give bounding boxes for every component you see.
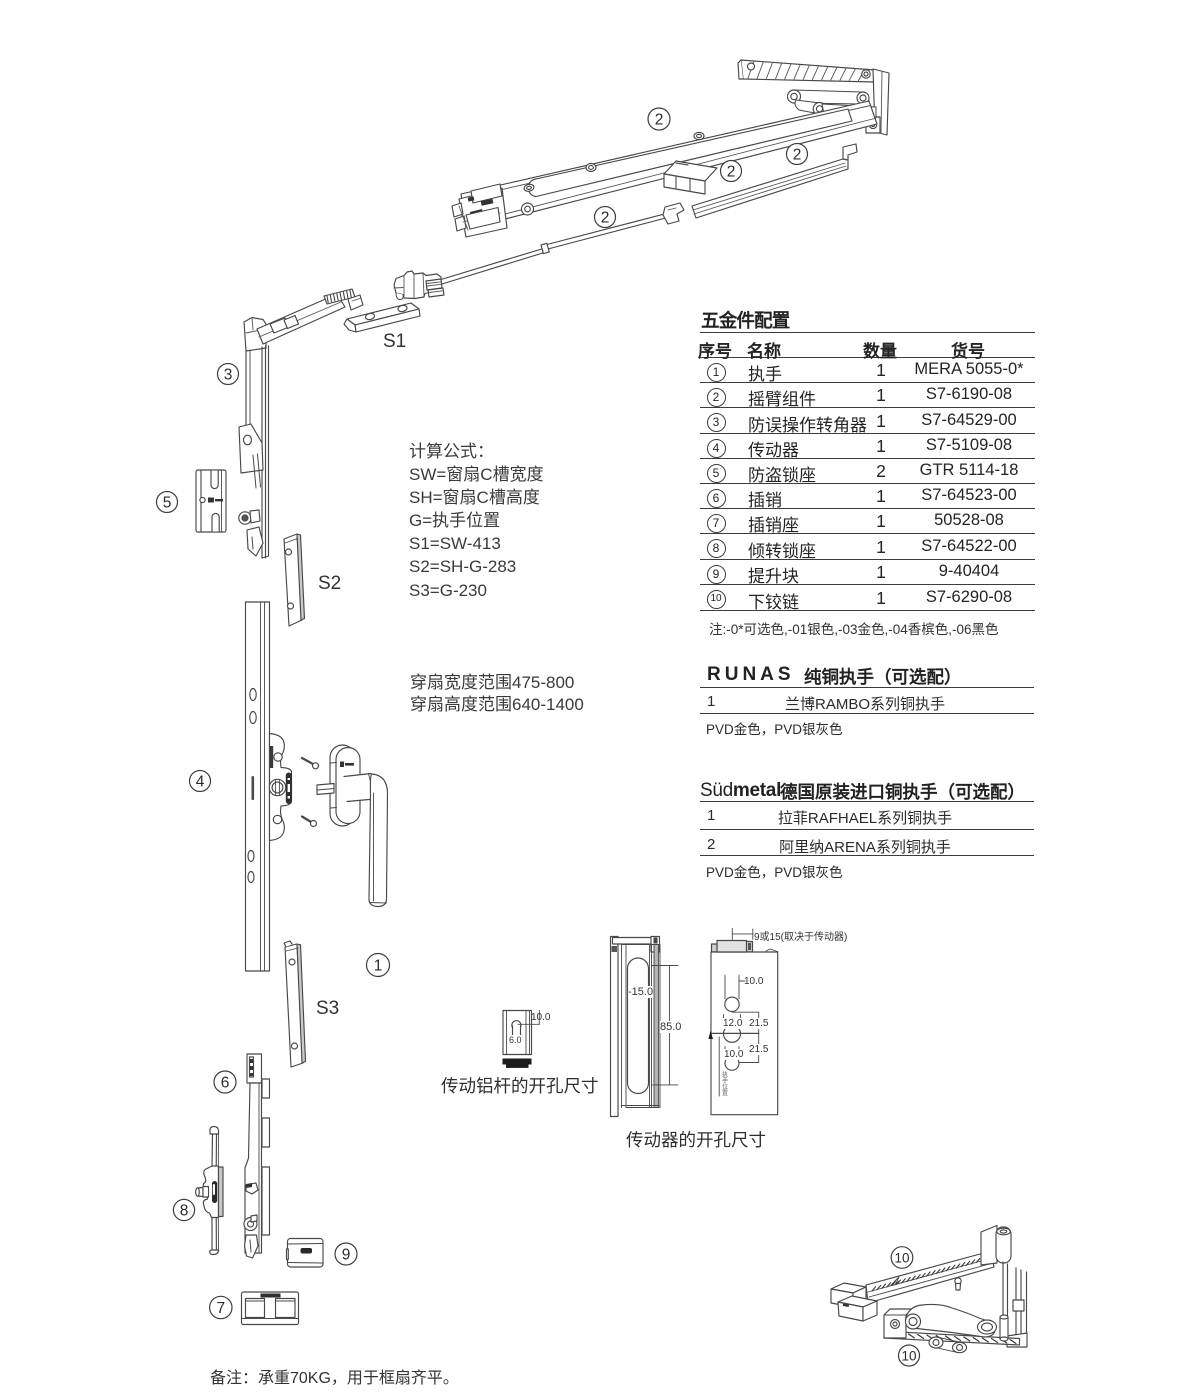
svg-text:6: 6 [221,1075,230,1092]
svg-text:1: 1 [374,958,383,975]
svg-text:4: 4 [196,774,205,791]
svg-text:10: 10 [894,1250,909,1265]
svg-text:3: 3 [224,367,233,384]
svg-text:9: 9 [342,1247,351,1264]
svg-text:5: 5 [163,495,172,512]
svg-text:8: 8 [180,1203,189,1220]
svg-text:2: 2 [655,112,664,129]
svg-text:7: 7 [216,1300,225,1317]
svg-text:2: 2 [793,147,802,164]
svg-text:2: 2 [727,164,736,181]
svg-text:10: 10 [901,1348,916,1363]
svg-text:2: 2 [601,210,610,227]
